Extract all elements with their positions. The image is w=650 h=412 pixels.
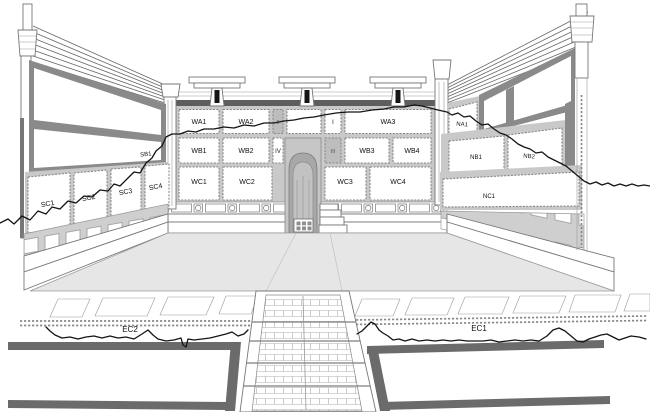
label-NB1: NB1 — [470, 155, 482, 161]
drawing-canvas: WA1 WA2 II I WA3 WB1 WB2 IV III WB3 WB4 … — [0, 0, 650, 412]
label-NA1: NA1 — [456, 122, 469, 129]
label-WB3: WB3 — [359, 148, 374, 155]
label-SB1: SB1 — [140, 151, 153, 158]
panel-center-upper — [287, 110, 321, 134]
label-IV: IV — [275, 149, 281, 155]
label-EC2: EC2 — [122, 325, 138, 334]
label-WC4: WC4 — [390, 179, 406, 186]
label-WB4: WB4 — [404, 148, 419, 155]
label-II: II — [277, 120, 280, 126]
label-NB2: NB2 — [523, 154, 536, 161]
label-III: III — [331, 149, 335, 155]
right-upper-divider — [506, 86, 514, 131]
label-EC1: EC1 — [471, 324, 487, 333]
wall-edge-shadow — [20, 118, 24, 238]
label-WC2: WC2 — [239, 179, 255, 186]
label-WC1: WC1 — [191, 179, 207, 186]
label-WC3: WC3 — [337, 179, 353, 186]
label-WB1: WB1 — [191, 148, 206, 155]
right-edge-strip — [565, 99, 575, 173]
label-WB2: WB2 — [238, 148, 253, 155]
back-wall — [161, 60, 451, 233]
room-perspective-drawing: WA1 WA2 II I WA3 WB1 WB2 IV III WB3 WB4 … — [0, 0, 650, 412]
label-WA3: WA3 — [381, 119, 396, 126]
label-NC1: NC1 — [483, 194, 496, 200]
label-WA2: WA2 — [239, 119, 254, 126]
label-WA1: WA1 — [192, 119, 207, 126]
